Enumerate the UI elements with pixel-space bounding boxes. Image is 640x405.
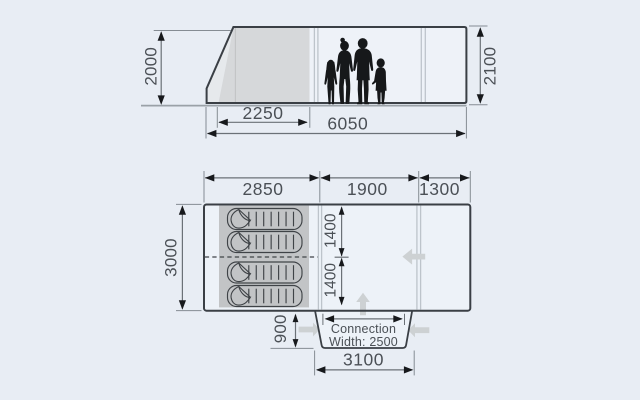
svg-text:6050: 6050	[327, 114, 368, 134]
svg-text:2000: 2000	[141, 47, 160, 86]
svg-text:1900: 1900	[347, 179, 388, 199]
svg-text:1400: 1400	[323, 213, 340, 248]
svg-text:Width: 2500: Width: 2500	[329, 335, 398, 349]
svg-text:900: 900	[271, 314, 290, 343]
svg-text:1400: 1400	[323, 263, 340, 298]
svg-text:2250: 2250	[243, 103, 284, 123]
svg-text:2100: 2100	[481, 47, 500, 86]
svg-text:1300: 1300	[419, 179, 460, 199]
svg-text:3000: 3000	[161, 238, 180, 277]
svg-text:3100: 3100	[343, 350, 384, 370]
svg-text:2850: 2850	[243, 179, 284, 199]
